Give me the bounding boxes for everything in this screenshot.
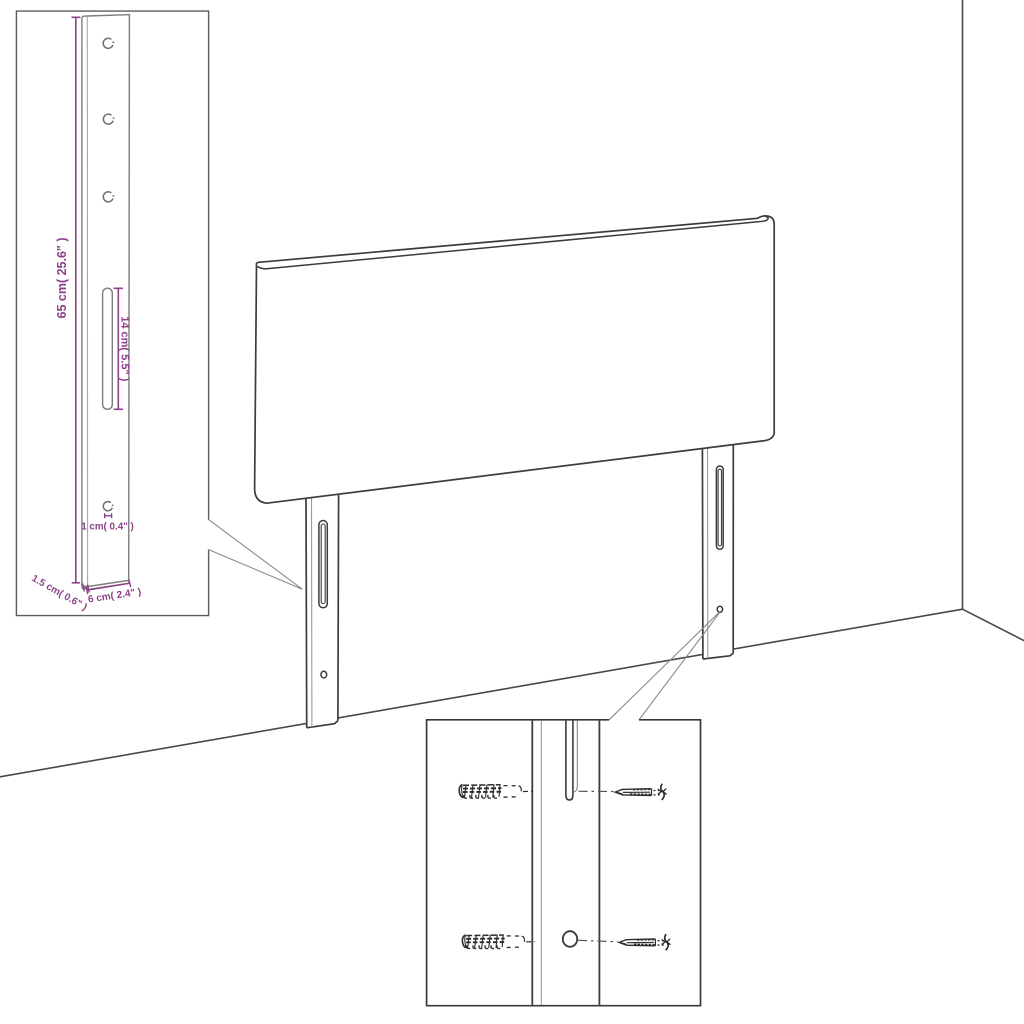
svg-text:65 cm( 25.6" ): 65 cm( 25.6" ) xyxy=(55,238,69,319)
svg-text:1 cm( 0.4" ): 1 cm( 0.4" ) xyxy=(81,522,134,533)
svg-text:1.5 cm( 0.6" ): 1.5 cm( 0.6" ) xyxy=(30,573,89,613)
svg-text:14 cm( 5.5" ): 14 cm( 5.5" ) xyxy=(119,316,131,381)
